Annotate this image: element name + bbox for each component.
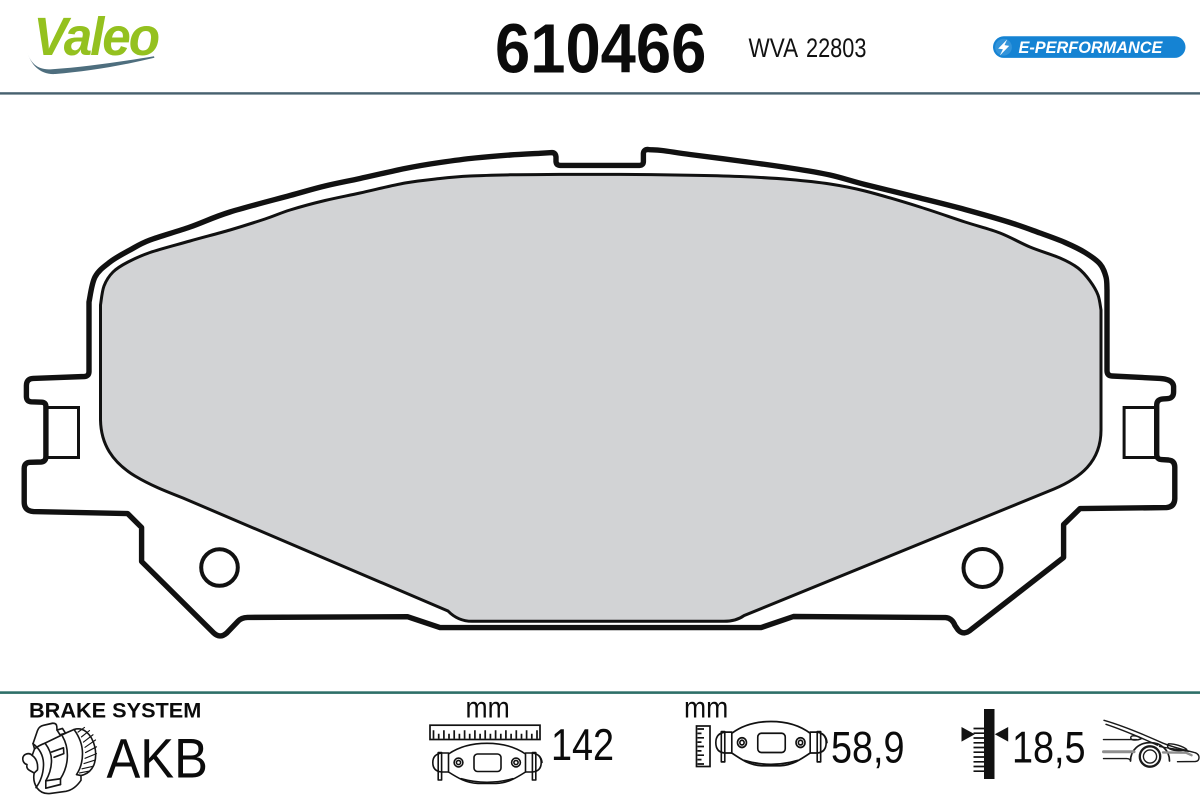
svg-text:WVA: WVA	[749, 34, 799, 63]
svg-text:mm: mm	[466, 691, 510, 724]
svg-text:18,5: 18,5	[1012, 723, 1086, 773]
svg-text:AKB: AKB	[107, 728, 208, 790]
svg-text:22803: 22803	[806, 34, 866, 64]
svg-text:E-PERFORMANCE: E-PERFORMANCE	[1019, 39, 1164, 57]
svg-text:BRAKE SYSTEM: BRAKE SYSTEM	[29, 698, 201, 723]
svg-text:mm: mm	[684, 691, 728, 724]
svg-text:610466: 610466	[495, 11, 706, 89]
svg-text:58,9: 58,9	[831, 723, 905, 773]
svg-text:Valeo: Valeo	[34, 7, 159, 67]
svg-text:142: 142	[551, 720, 614, 770]
